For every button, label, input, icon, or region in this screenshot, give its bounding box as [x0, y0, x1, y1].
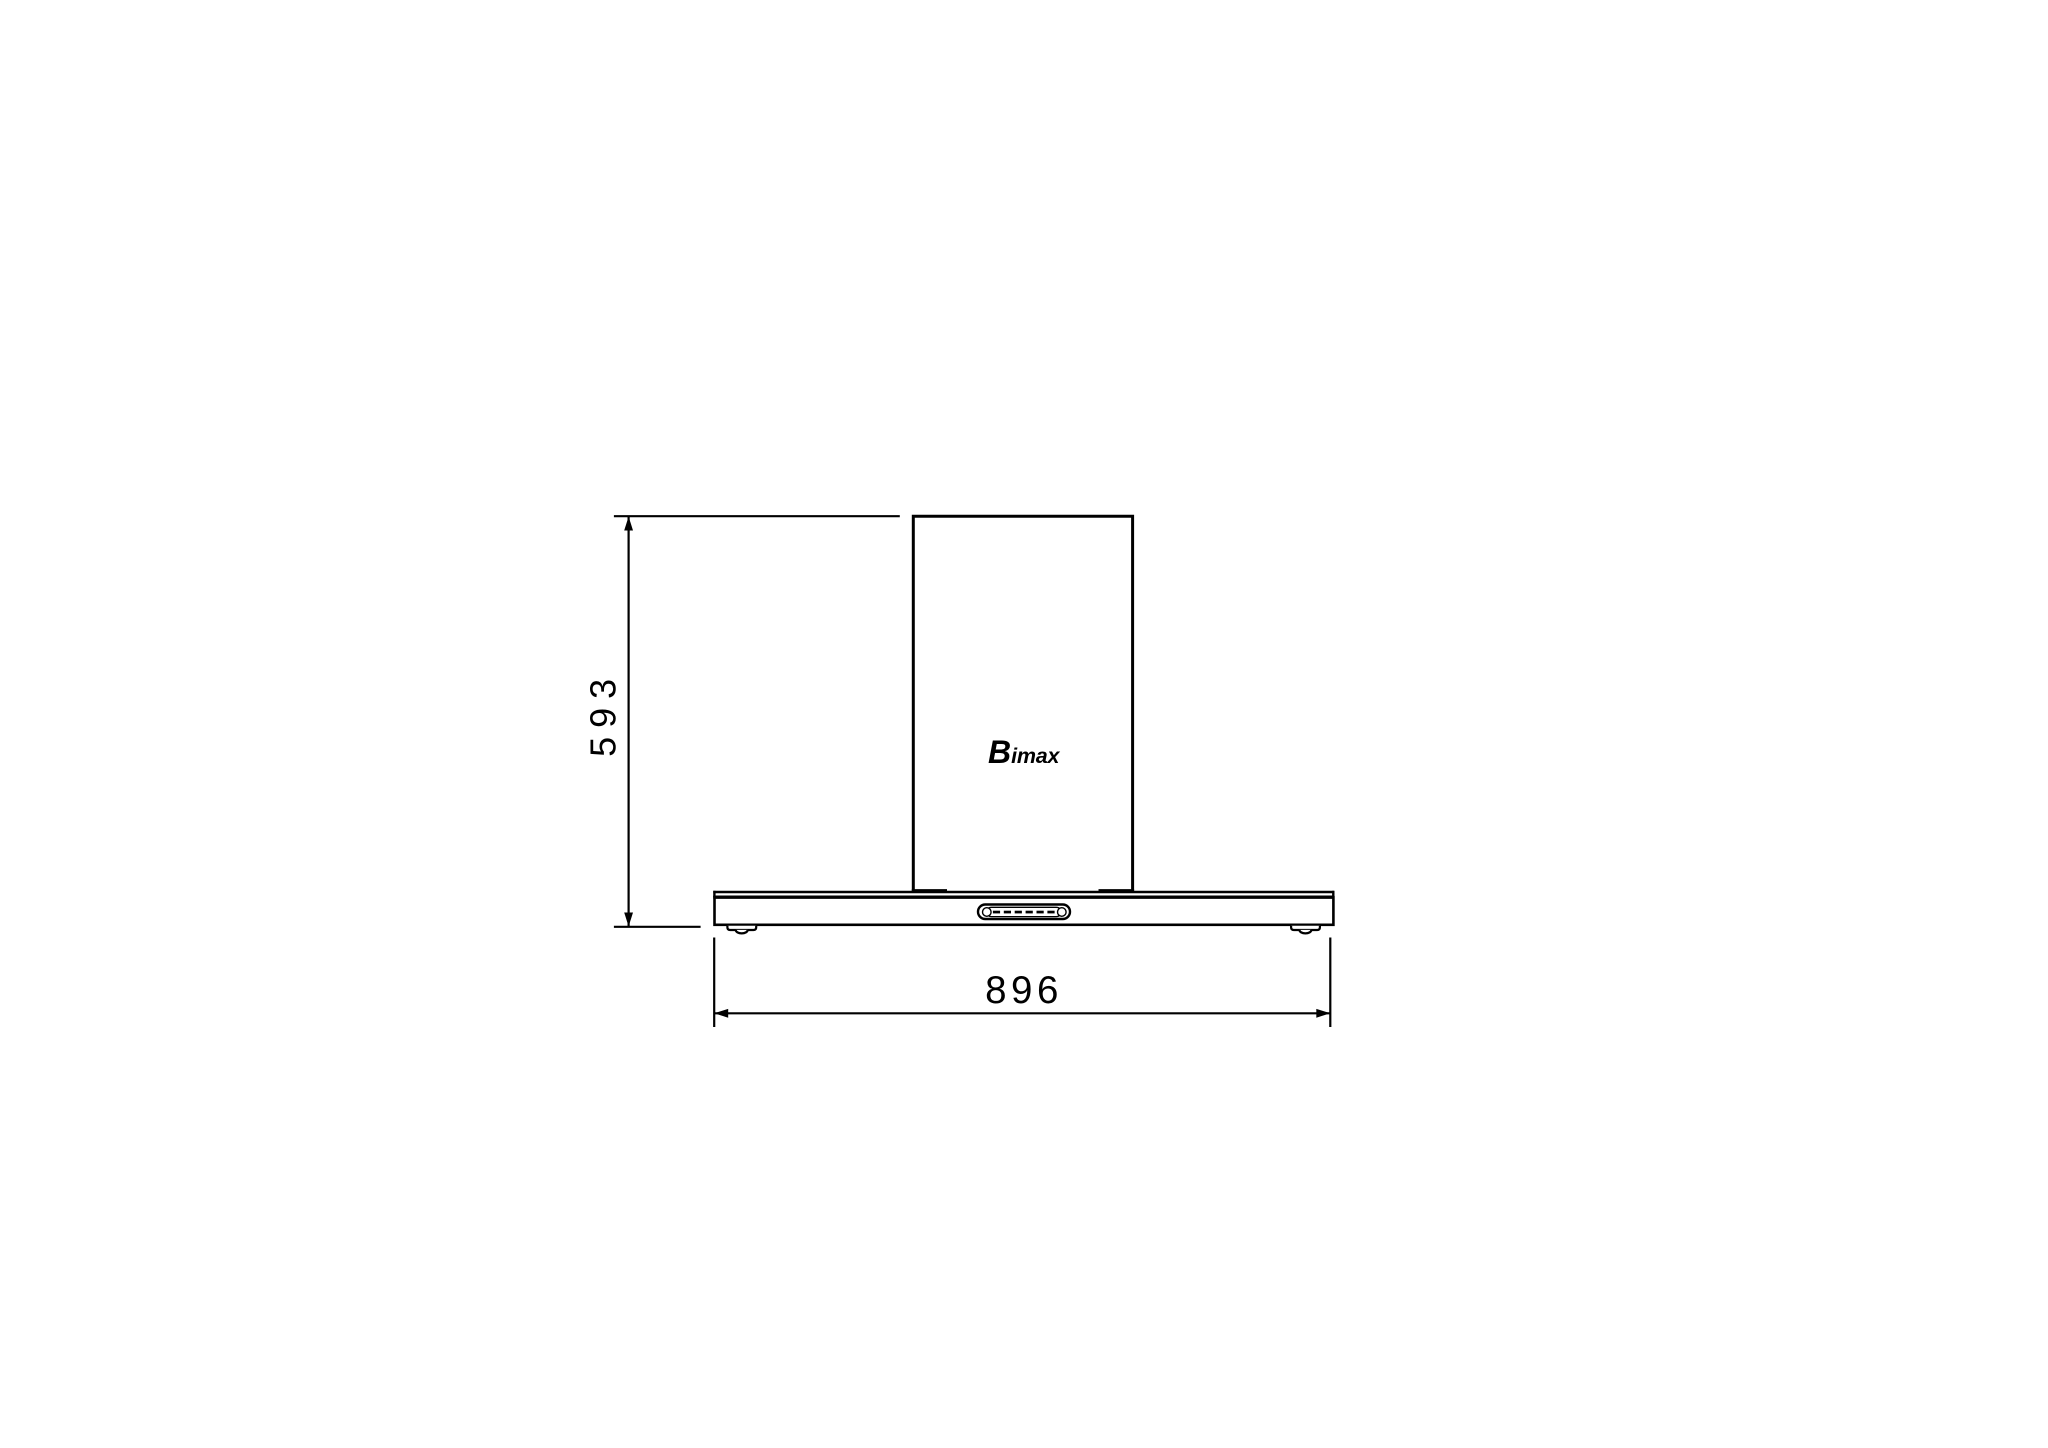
svg-text:896: 896	[985, 969, 1063, 1012]
svg-text:593: 593	[582, 670, 623, 757]
